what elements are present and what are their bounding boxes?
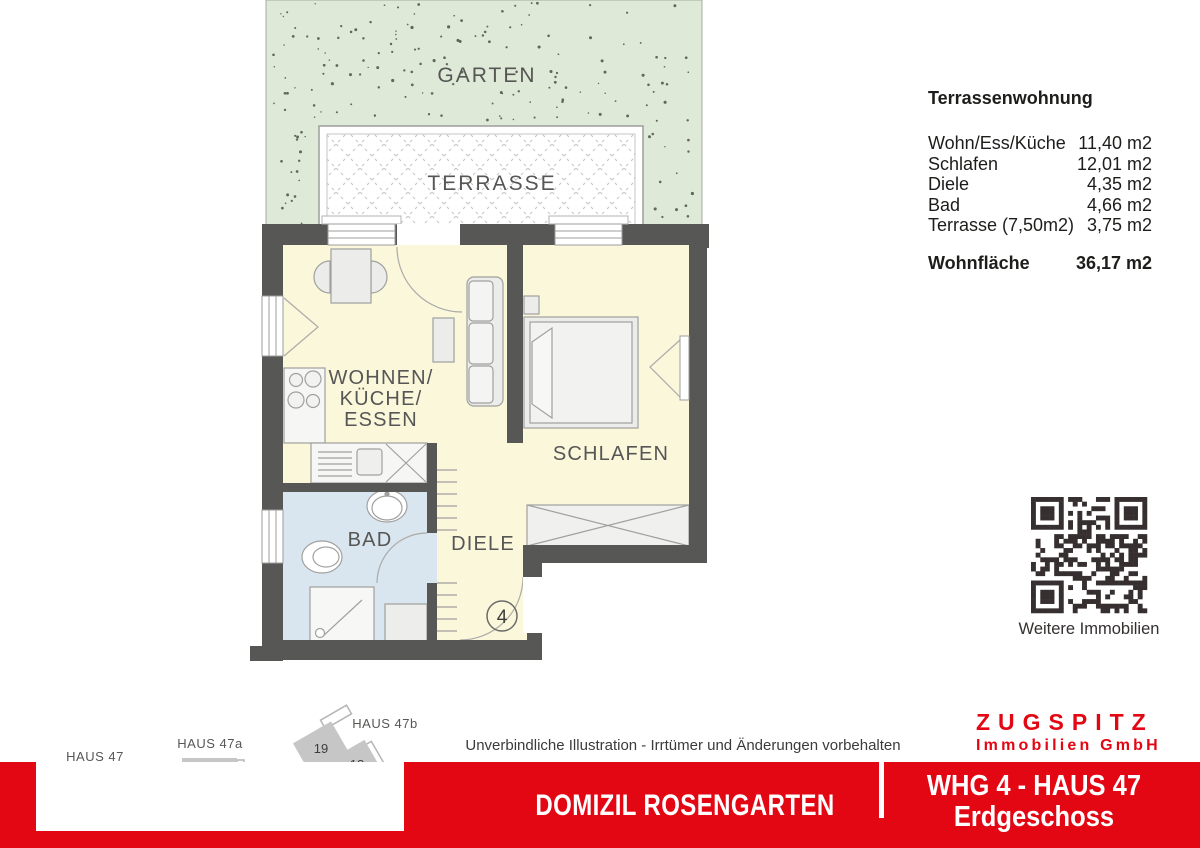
haus47a-label: HAUS 47a bbox=[177, 736, 243, 751]
wardrobe bbox=[527, 505, 689, 546]
area-table: Terrassenwohnung Wohn/Ess/Küche 11,40 m2… bbox=[928, 88, 1152, 274]
side-table bbox=[433, 318, 454, 362]
brand-name: ZUGSPITZ bbox=[976, 709, 1161, 736]
bed bbox=[524, 317, 638, 428]
row-label: Schlafen bbox=[928, 154, 998, 175]
area-total-row: Wohnfläche 36,17 m2 bbox=[928, 253, 1152, 274]
bedroom-label: SCHLAFEN bbox=[553, 443, 669, 465]
garden-label: GARTEN bbox=[437, 64, 536, 87]
hall-label: DIELE bbox=[451, 533, 515, 555]
unit-title: WHG 4 - HAUS 47 bbox=[902, 771, 1166, 802]
floorplan-sheet: GARTEN TERRASSE bbox=[0, 0, 1200, 848]
row-label: Terrasse (7,50m2) bbox=[928, 215, 1074, 236]
toilet bbox=[302, 541, 342, 573]
total-label: Wohnfläche bbox=[928, 253, 1030, 274]
shower bbox=[310, 587, 374, 645]
nightstand bbox=[524, 296, 539, 314]
disclaimer-text: Unverbindliche Illustration - Irrtümer u… bbox=[465, 737, 900, 754]
table-row: Schlafen 12,01 m2 bbox=[928, 154, 1152, 175]
living-label-3: ESSEN bbox=[344, 409, 418, 431]
total-value: 36,17 m2 bbox=[1076, 253, 1152, 274]
area-table-rows: Wohn/Ess/Küche 11,40 m2 Schlafen 12,01 m… bbox=[928, 133, 1152, 236]
bath-label: BAD bbox=[348, 529, 393, 551]
unit-panel: WHG 4 - HAUS 47 Erdgeschoss bbox=[884, 771, 1184, 833]
terrace-area: TERRASSE bbox=[319, 126, 643, 228]
haus47b-unit19: 19 bbox=[314, 741, 328, 756]
table-row: Bad 4,66 m2 bbox=[928, 195, 1152, 216]
row-value: 11,40 m2 bbox=[1078, 133, 1152, 154]
living-label-1: WOHNEN/ bbox=[328, 367, 433, 389]
row-value: 12,01 m2 bbox=[1077, 154, 1152, 175]
row-label: Diele bbox=[928, 174, 969, 195]
project-title: DOMIZIL ROSENGARTEN bbox=[535, 789, 834, 823]
qr-code bbox=[1031, 497, 1147, 613]
row-value: 3,75 m2 bbox=[1087, 215, 1152, 236]
row-value: 4,66 m2 bbox=[1087, 195, 1152, 216]
kitchen-counter bbox=[311, 443, 427, 483]
footer-siteplan-notch bbox=[36, 762, 404, 831]
brand-logo: ZUGSPITZ Immobilien GmbH bbox=[976, 709, 1161, 755]
table-row: Terrasse (7,50m2) 3,75 m2 bbox=[928, 215, 1152, 236]
row-value: 4,35 m2 bbox=[1087, 174, 1152, 195]
table-row: Wohn/Ess/Küche 11,40 m2 bbox=[928, 133, 1152, 154]
sofa bbox=[467, 277, 503, 406]
area-table-title: Terrassenwohnung bbox=[928, 88, 1152, 109]
floor-title: Erdgeschoss bbox=[902, 802, 1166, 833]
kitchen-cooktop bbox=[284, 368, 325, 443]
row-label: Bad bbox=[928, 195, 960, 216]
terrace-label: TERRASSE bbox=[427, 172, 556, 195]
unit-number: 4 bbox=[497, 607, 508, 628]
washer bbox=[385, 604, 427, 644]
qr-caption: Weitere Immobilien bbox=[1019, 620, 1160, 639]
entry-opening bbox=[523, 577, 542, 633]
washbasin bbox=[367, 490, 407, 522]
terrace-door-opening bbox=[397, 224, 460, 245]
table-row: Diele 4,35 m2 bbox=[928, 174, 1152, 195]
row-label: Wohn/Ess/Küche bbox=[928, 133, 1066, 154]
haus47b-label: HAUS 47b bbox=[352, 716, 417, 731]
living-label-2: KÜCHE/ bbox=[340, 388, 423, 410]
brand-subtitle: Immobilien GmbH bbox=[976, 737, 1161, 755]
